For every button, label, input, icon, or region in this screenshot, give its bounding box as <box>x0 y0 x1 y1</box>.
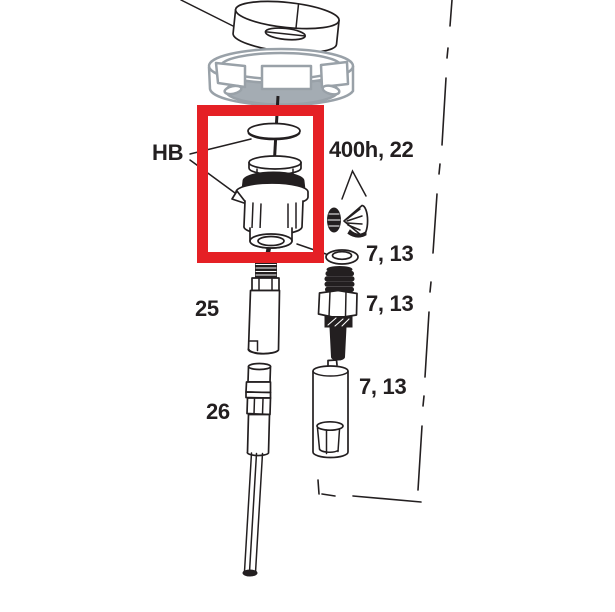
cone-part-drawing <box>344 206 368 238</box>
diagram-canvas <box>0 0 615 612</box>
cap-drawing <box>209 49 353 105</box>
label-7-13-a: 7, 13 <box>366 243 413 265</box>
label-hb: HB <box>152 142 183 164</box>
bolt-713-drawing <box>319 267 358 361</box>
top-washer-drawing <box>248 124 300 140</box>
exploded-parts-diagram: HB 400h, 22 7, 13 7, 13 7, 13 25 26 <box>0 0 615 612</box>
part-26-drawing <box>243 364 271 577</box>
cap-window-center <box>262 66 311 89</box>
leader-line-offscreen <box>181 0 233 26</box>
knob-assembly-drawing <box>232 156 308 248</box>
chevron-arrow <box>342 171 366 199</box>
label-7-13-b: 7, 13 <box>366 293 413 315</box>
sleeve-713-drawing <box>313 360 348 458</box>
label-26: 26 <box>206 401 230 423</box>
knurled-disc-drawing <box>328 208 341 232</box>
cap-window-right <box>321 62 348 87</box>
part-25-drawing <box>248 258 279 354</box>
label-7-13-c: 7, 13 <box>359 376 406 398</box>
label-25: 25 <box>195 298 219 320</box>
washer-713-drawing <box>326 250 358 264</box>
label-400h-22: 400h, 22 <box>329 139 413 161</box>
cap-window-left <box>216 63 245 87</box>
